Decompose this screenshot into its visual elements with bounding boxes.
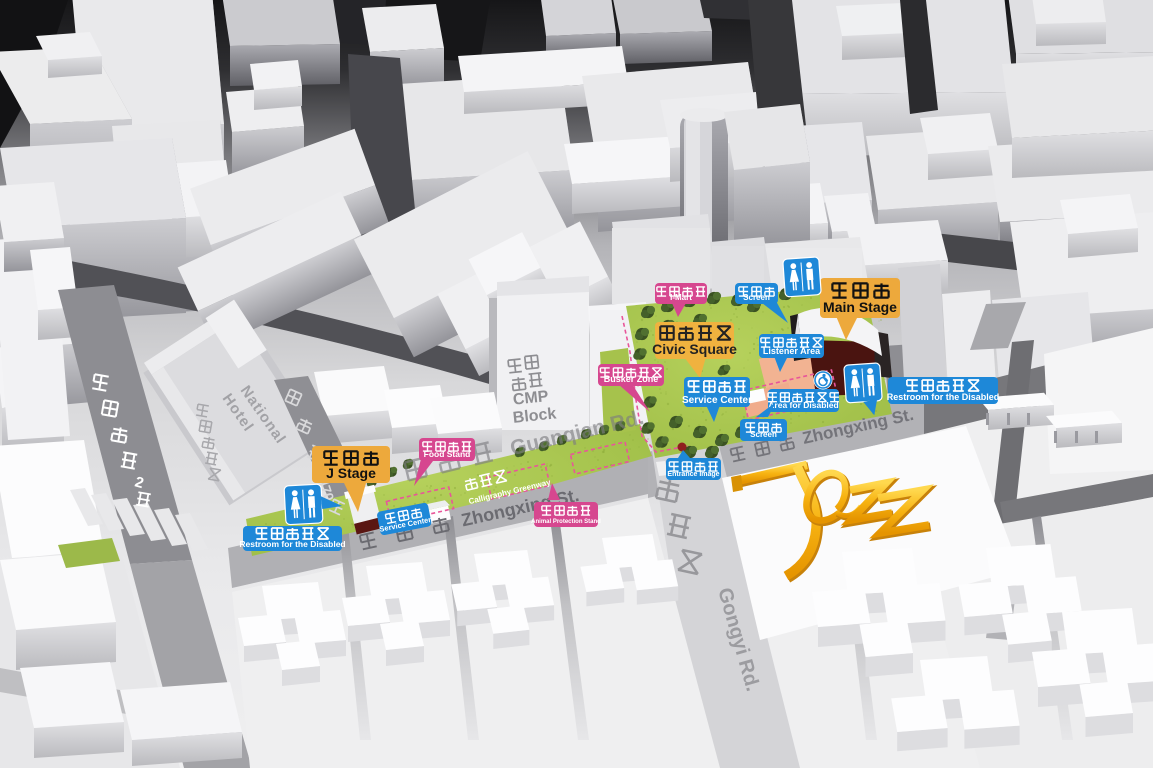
svg-text:Screen: Screen [750, 430, 777, 439]
svg-text:Restroom for the Disabled: Restroom for the Disabled [887, 392, 1000, 402]
svg-text:Listener Area: Listener Area [763, 346, 821, 356]
svg-text:Civic Square: Civic Square [652, 341, 737, 357]
svg-text:Main Stage: Main Stage [823, 299, 897, 315]
svg-text:Animal Protection Stand: Animal Protection Stand [531, 519, 601, 525]
svg-text:Screen: Screen [743, 293, 770, 302]
svg-text:Service Center: Service Center [682, 395, 752, 406]
svg-text:I-Mart: I-Mart [670, 293, 692, 302]
svg-text:Food Stand: Food Stand [424, 449, 471, 459]
svg-text:Restroom for the Disabled: Restroom for the Disabled [239, 539, 345, 549]
svg-text:Entrance Image: Entrance Image [667, 471, 719, 478]
svg-text:J Stage: J Stage [326, 465, 376, 481]
svg-text:Busker Zone: Busker Zone [604, 374, 659, 384]
svg-text:Area for Disabled: Area for Disabled [768, 400, 838, 410]
